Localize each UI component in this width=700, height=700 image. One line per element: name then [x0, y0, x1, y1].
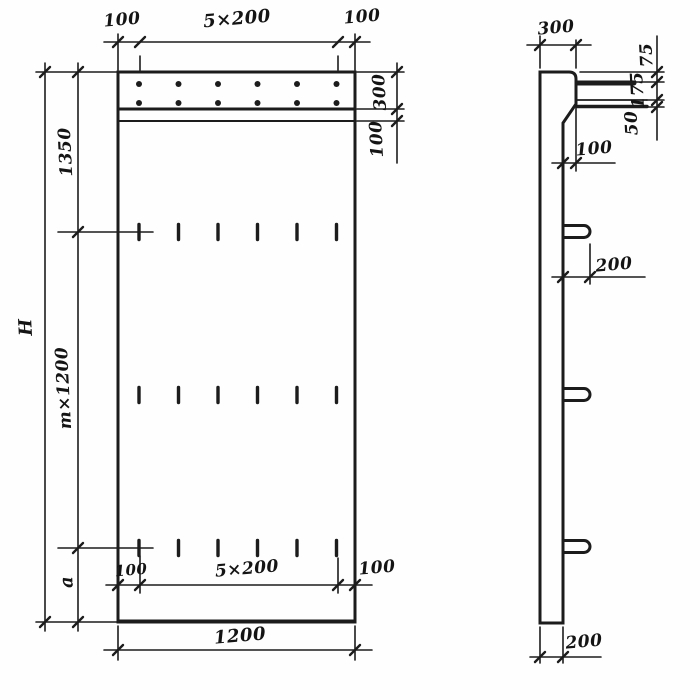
- dim-side-top-width: 300: [537, 16, 576, 39]
- dim-front-bottom-left-margin: 100: [114, 560, 148, 581]
- front-view-panel: [118, 72, 355, 622]
- dim-side-panel-thickness: 200: [565, 630, 604, 653]
- dim-side-edge-seg-mid: 175: [627, 71, 649, 109]
- dim-front-bottom-right-margin: 100: [358, 556, 397, 579]
- dim-front-band-height: 100: [366, 120, 388, 158]
- dim-front-module-section: m×1200: [52, 346, 76, 429]
- dim-front-top-right-margin: 100: [343, 5, 382, 28]
- technical-drawing-sheet: 100 5×200 100 300 100 1350 H m×1200 a 10…: [0, 0, 700, 700]
- dim-side-edge-seg-top: 75: [636, 42, 657, 68]
- dim-front-top-section-1350: 1350: [55, 127, 78, 177]
- bolt-holes: [136, 81, 340, 106]
- dim-front-top-strip-height: 300: [369, 73, 391, 111]
- side-dimension-lines: [527, 36, 664, 663]
- dim-side-step-offset: 100: [575, 137, 614, 160]
- slot-marks: [139, 225, 337, 556]
- dim-side-edge-seg-bottom: 50: [621, 110, 642, 136]
- side-dimension-ticks: [535, 40, 662, 662]
- drawing-geometry: [0, 0, 700, 700]
- dim-front-bottom-section-a: a: [56, 575, 78, 588]
- side-view: [527, 36, 664, 663]
- dim-front-overall-height-H: H: [15, 318, 37, 337]
- dim-side-hook-projection: 200: [595, 253, 634, 276]
- dim-front-top-left-margin: 100: [103, 8, 142, 31]
